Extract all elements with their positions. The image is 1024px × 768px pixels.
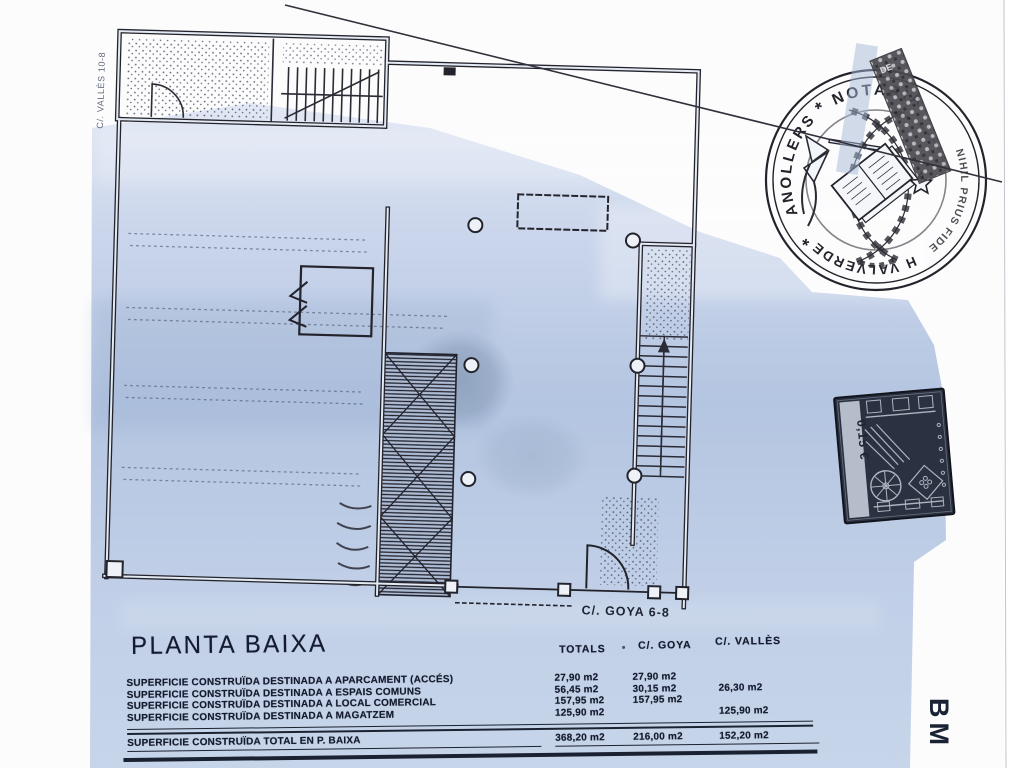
- side-label: BM: [924, 698, 954, 750]
- surface-table: PLANTA BAIXA TOTALS C/. GOYA C/. VALLÈS …: [126, 631, 827, 761]
- row-value-valles: 125,90 m2: [719, 705, 819, 718]
- ramp-hatch: [378, 353, 457, 597]
- row-value-totals: 125,90 m2: [555, 707, 633, 720]
- total-label: SUPERFICIE CONSTRUÏDA TOTAL EN P. BAIXA: [127, 733, 541, 752]
- row-value-totals: 27,90 m2: [554, 672, 632, 685]
- total-value-goya: 216,00 m2: [633, 731, 719, 746]
- total-value-valles: 152,20 m2: [719, 730, 819, 745]
- row-value-valles: [719, 678, 819, 679]
- table-title: PLANTA BAIXA: [131, 639, 328, 653]
- total-value-totals: 368,20 m2: [555, 732, 633, 747]
- ink-speck: [622, 646, 625, 649]
- street-label-goya: C/. GOYA 6-8: [581, 603, 670, 619]
- row-value-goya: [633, 714, 719, 715]
- table-rows: SUPERFICIE CONSTRUÏDA DESTINADA A APARCA…: [126, 669, 827, 724]
- col-header-totals: TOTALS: [559, 644, 606, 656]
- col-header-valles: C/. VALLÈS: [715, 636, 781, 649]
- row-value-totals: 56,45 m2: [555, 684, 633, 697]
- scanned-notarial-document: { "plan": { "street_goya": "C/. GOYA 6-8…: [0, 0, 1024, 768]
- wall-notch: [444, 67, 456, 75]
- row-value-valles: [719, 701, 819, 702]
- paper-edge-margin: [1004, 0, 1024, 768]
- row-value-goya: 27,90 m2: [632, 671, 718, 684]
- row-value-valles: 26,30 m2: [719, 681, 819, 694]
- row-value-totals: 157,95 m2: [555, 695, 633, 708]
- col-header-goya: C/. GOYA: [638, 640, 692, 652]
- fiscal-stamp: 0,15 €: [834, 388, 955, 523]
- row-value-goya: 157,95 m2: [633, 694, 719, 707]
